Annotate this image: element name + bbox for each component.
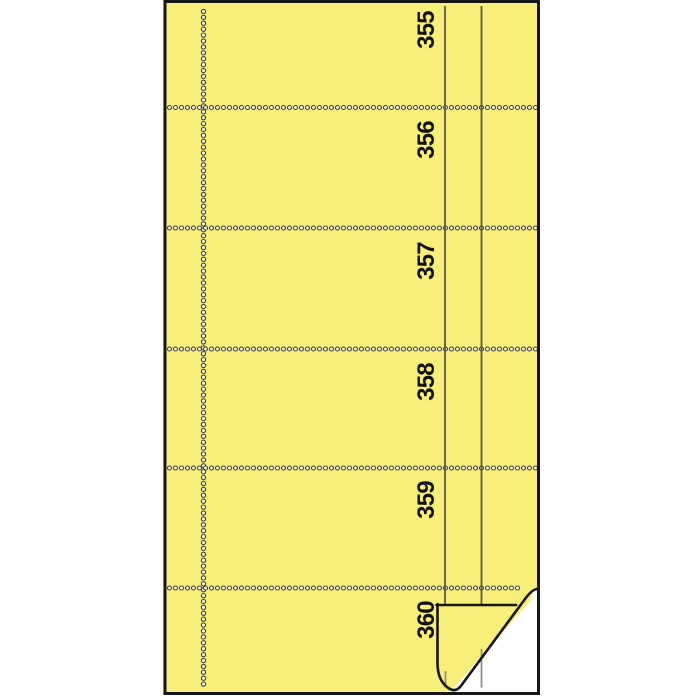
perforation-dot [378,347,382,351]
perforation-dot [354,347,358,351]
perforation-dot [420,466,424,470]
perforation-dot [228,586,232,590]
perforation-dot [396,347,400,351]
perforation-dot [201,535,205,539]
perforation-dot [198,586,202,590]
perforation-dot [378,466,382,470]
perforation-dot [348,586,352,590]
perforation-dot [246,586,250,590]
perforation-dot [390,226,394,230]
perforation-dot [204,466,208,470]
perforation-dot [504,226,508,230]
perforation-dot [201,57,205,61]
perforation-dot [312,106,316,110]
perforation-dot [384,586,388,590]
perforation-dot [306,586,310,590]
perforation-dot [396,106,400,110]
perforation-dot [516,466,520,470]
perforation-dot [534,466,538,470]
perforation-dot [234,586,238,590]
perforation-dot [210,466,214,470]
perforation-dot [201,434,205,438]
perforation-dot [258,226,262,230]
perforation-dot [198,466,202,470]
perforation-dot [522,226,526,230]
perforation-dot [288,347,292,351]
perforation-dot [384,226,388,230]
perforation-dot [534,347,538,351]
perforation-dot [510,466,514,470]
ticket-number: 360 [413,601,440,639]
perforation-dot [201,263,205,267]
perforation-dot [300,226,304,230]
perforation-dot [252,586,256,590]
perforation-dot [201,133,205,137]
perforation-dot [258,106,262,110]
perforation-dot [201,234,205,238]
perforation-dot [438,466,442,470]
perforation-dot [318,466,322,470]
perforation-dot [498,347,502,351]
perforation-dot [168,586,172,590]
perforation-dot [186,106,190,110]
perforation-dot [390,466,394,470]
perforation-dot [294,586,298,590]
perforation-dot [270,347,274,351]
perforation-dot [201,15,205,19]
perforation-dot [486,347,490,351]
perforation-dot [264,347,268,351]
perforation-dot [201,499,205,503]
perforation-dot [252,466,256,470]
perforation-dot [201,658,205,662]
perforation-dot [426,106,430,110]
perforation-dot [246,347,250,351]
perforation-dot [201,381,205,385]
perforation-dot [438,226,442,230]
perforation-dot [456,226,460,230]
perforation-dot [474,226,478,230]
perforation-dot [201,664,205,668]
perforation-dot [408,226,412,230]
perforation-dot [201,257,205,261]
perforation-dot [180,586,184,590]
perforation-dot [324,226,328,230]
perforation-dot [258,347,262,351]
perforation-dot [201,304,205,308]
perforation-dot [240,106,244,110]
perforation-dot [201,157,205,161]
perforation-dot [201,605,205,609]
perforation-dot [264,586,268,590]
perforation-dot [201,511,205,515]
perforation-dot [168,226,172,230]
perforation-dot [348,347,352,351]
perforation-dot [201,169,205,173]
perforation-dot [201,122,205,126]
perforation-dot [252,347,256,351]
perforation-dot [201,98,205,102]
perforation-dot [201,251,205,255]
perforation-dot [201,405,205,409]
ticket-number: 356 [413,121,440,159]
perforation-dot [462,466,466,470]
perforation-dot [450,226,454,230]
perforation-dot [468,466,472,470]
perforation-dot [438,106,442,110]
perforation-dot [516,347,520,351]
perforation-dot [201,86,205,90]
perforation-dot [201,564,205,568]
perforation-dot [201,240,205,244]
perforation-dot [201,546,205,550]
perforation-dot [390,106,394,110]
perforation-dot [342,226,346,230]
perforation-dot [201,476,205,480]
perforation-dot [294,466,298,470]
perforation-dot [210,586,214,590]
perforation-dot [306,106,310,110]
perforation-dot [420,226,424,230]
perforation-dot [450,586,454,590]
perforation-dot [516,226,520,230]
perforation-dot [240,466,244,470]
perforation-dot [222,586,226,590]
perforation-dot [342,466,346,470]
perforation-dot [201,552,205,556]
perforation-dot [201,322,205,326]
perforation-dot [186,466,190,470]
perforation-dot [330,466,334,470]
perforation-dot [201,599,205,603]
perforation-dot [432,586,436,590]
perforation-dot [288,586,292,590]
perforation-dot [300,466,304,470]
perforation-dot [201,358,205,362]
perforation-dot [450,466,454,470]
perforation-dot [468,226,472,230]
perforation-dot [324,466,328,470]
perforation-dot [366,347,370,351]
perforation-dot [474,586,478,590]
perforation-dot [330,106,334,110]
perforation-dot [258,586,262,590]
perforation-dot [240,226,244,230]
perforation-dot [342,347,346,351]
perforation-dot [201,629,205,633]
perforation-dot [201,676,205,680]
perforation-dot [438,347,442,351]
perforation-dot [288,226,292,230]
perforation-dot [276,226,280,230]
perforation-dot [228,226,232,230]
perforation-dot [492,347,496,351]
perforation-dot [270,466,274,470]
perforation-dot [201,393,205,397]
perforation-dot [201,611,205,615]
perforation-dot [504,106,508,110]
perforation-dot [534,226,538,230]
perforation-dot [402,466,406,470]
perforation-dot [432,466,436,470]
perforation-dot [201,363,205,367]
perforation-dot [492,226,496,230]
perforation-dot [270,226,274,230]
perforation-dot [420,586,424,590]
perforation-dot [270,106,274,110]
perforation-dot [201,316,205,320]
perforation-dot [201,623,205,627]
perforation-dot [201,523,205,527]
perforation-dot [282,586,286,590]
perforation-dot [348,226,352,230]
perforation-dot [450,347,454,351]
perforation-dot [498,226,502,230]
perforation-dot [396,226,400,230]
perforation-dot [192,347,196,351]
perforation-dot [192,226,196,230]
perforation-dot [276,466,280,470]
perforation-dot [354,466,358,470]
perforation-dot [360,226,364,230]
perforation-dot [456,106,460,110]
perforation-dot [201,80,205,84]
perforation-dot [486,106,490,110]
perforation-dot [342,106,346,110]
perforation-dot [306,466,310,470]
perforation-dot [294,226,298,230]
perforation-dot [498,586,502,590]
perforation-dot [201,127,205,131]
perforation-dot [201,682,205,686]
perforation-dot [492,466,496,470]
perforation-dot [474,106,478,110]
perforation-dot [432,226,436,230]
perforation-dot [384,466,388,470]
perforation-dot [252,106,256,110]
perforation-dot [192,586,196,590]
perforation-dot [201,328,205,332]
perforation-dot [201,222,205,226]
perforation-dot [432,347,436,351]
perforation-dot [468,106,472,110]
perforation-dot [222,226,226,230]
perforation-dot [201,375,205,379]
perforation-dot [354,226,358,230]
perforation-dot [432,106,436,110]
perforation-dot [201,641,205,645]
perforation-dot [414,466,418,470]
perforation-dot [366,226,370,230]
perforation-dot [426,586,430,590]
perforation-dot [402,106,406,110]
perforation-dot [201,653,205,657]
perforation-dot [504,586,508,590]
perforation-dot [252,226,256,230]
perforation-dot [201,116,205,120]
perforation-dot [378,106,382,110]
perforation-dot [234,106,238,110]
perforation-dot [330,226,334,230]
perforation-dot [201,299,205,303]
perforation-dot [324,586,328,590]
perforation-dot [201,428,205,432]
perforation-dot [198,106,202,110]
perforation-dot [204,226,208,230]
perforation-dot [294,106,298,110]
perforation-dot [408,347,412,351]
perforation-dot [174,466,178,470]
perforation-dot [234,226,238,230]
perforation-dot [174,586,178,590]
perforation-dot [312,466,316,470]
perforation-dot [366,106,370,110]
perforation-dot [180,226,184,230]
perforation-dot [522,106,526,110]
perforation-dot [201,9,205,13]
perforation-dot [234,347,238,351]
perforation-dot [201,110,205,114]
perforation-dot [264,226,268,230]
perforation-dot [276,586,280,590]
perforation-dot [282,106,286,110]
perforation-dot [174,226,178,230]
perforation-dot [300,106,304,110]
perforation-dot [201,210,205,214]
perforation-dot [306,347,310,351]
perforation-dot [204,586,208,590]
perforation-dot [201,481,205,485]
bon-book-graphic: 355 356 357 358 359 360 [0,0,700,700]
perforation-dot [228,106,232,110]
ticket-number: 355 [413,11,440,49]
perforation-dot [336,106,340,110]
perforation-dot [372,466,376,470]
perforation-dot [201,594,205,598]
perforation-dot [516,106,520,110]
perforation-dot [240,347,244,351]
perforation-dot [201,287,205,291]
perforation-dot [504,347,508,351]
perforation-dot [210,347,214,351]
perforation-dot [222,347,226,351]
perforation-dot [216,466,220,470]
perforation-dot [498,106,502,110]
perforation-dot [360,586,364,590]
perforation-dot [402,586,406,590]
perforation-dot [201,33,205,37]
perforation-dot [312,586,316,590]
perforation-dot [438,586,442,590]
perforation-dot [201,216,205,220]
perforation-dot [276,106,280,110]
perforation-dot [492,106,496,110]
perforation-dot [204,347,208,351]
perforation-dot [201,540,205,544]
ticket-number: 358 [413,363,440,401]
perforation-dot [180,347,184,351]
perforation-dot [522,466,526,470]
perforation-dot [201,51,205,55]
perforation-dot [336,466,340,470]
perforation-dot [342,586,346,590]
perforation-dot [486,466,490,470]
perforation-dot [192,466,196,470]
perforation-dot [201,493,205,497]
perforation-dot [366,586,370,590]
perforation-dot [201,635,205,639]
perforation-dot [336,226,340,230]
perforation-dot [201,275,205,279]
perforation-dot [201,505,205,509]
perforation-dot [282,347,286,351]
perforation-dot [372,226,376,230]
perforation-dot [168,106,172,110]
perforation-dot [282,466,286,470]
perforation-dot [258,466,262,470]
perforation-dot [240,586,244,590]
perforation-dot [201,558,205,562]
perforation-dot [528,226,532,230]
perforation-dot [474,466,478,470]
perforation-dot [372,586,376,590]
perforation-dot [201,63,205,67]
perforation-dot [201,175,205,179]
perforation-dot [201,422,205,426]
perforation-dot [462,106,466,110]
perforation-dot [216,106,220,110]
perforation-dot [264,106,268,110]
perforation-dot [246,466,250,470]
perforation-dot [204,106,208,110]
perforation-dot [354,586,358,590]
perforation-dot [201,39,205,43]
perforation-dot [216,347,220,351]
perforation-dot [510,106,514,110]
perforation-dot [270,586,274,590]
perforation-dot [234,466,238,470]
perforation-dot [192,106,196,110]
perforation-dot [198,226,202,230]
perforation-dot [510,226,514,230]
perforation-dot [396,466,400,470]
perforation-dot [318,586,322,590]
perforation-dot [360,106,364,110]
perforation-dot [201,647,205,651]
perforation-dot [522,347,526,351]
perforation-dot [360,466,364,470]
perforation-dot [201,399,205,403]
perforation-dot [486,586,490,590]
perforation-dot [318,226,322,230]
perforation-dot [336,347,340,351]
perforation-dot [378,226,382,230]
perforation-dot [216,226,220,230]
perforation-dot [330,347,334,351]
perforation-dot [174,106,178,110]
perforation-dot [201,293,205,297]
perforation-dot [201,340,205,344]
perforation-dot [504,466,508,470]
perforation-dot [201,186,205,190]
perforation-dot [492,586,496,590]
perforation-dot [462,586,466,590]
perforation-dot [300,347,304,351]
perforation-dot [201,446,205,450]
perforation-dot [528,106,532,110]
perforation-dot [420,106,424,110]
perforation-dot [528,347,532,351]
